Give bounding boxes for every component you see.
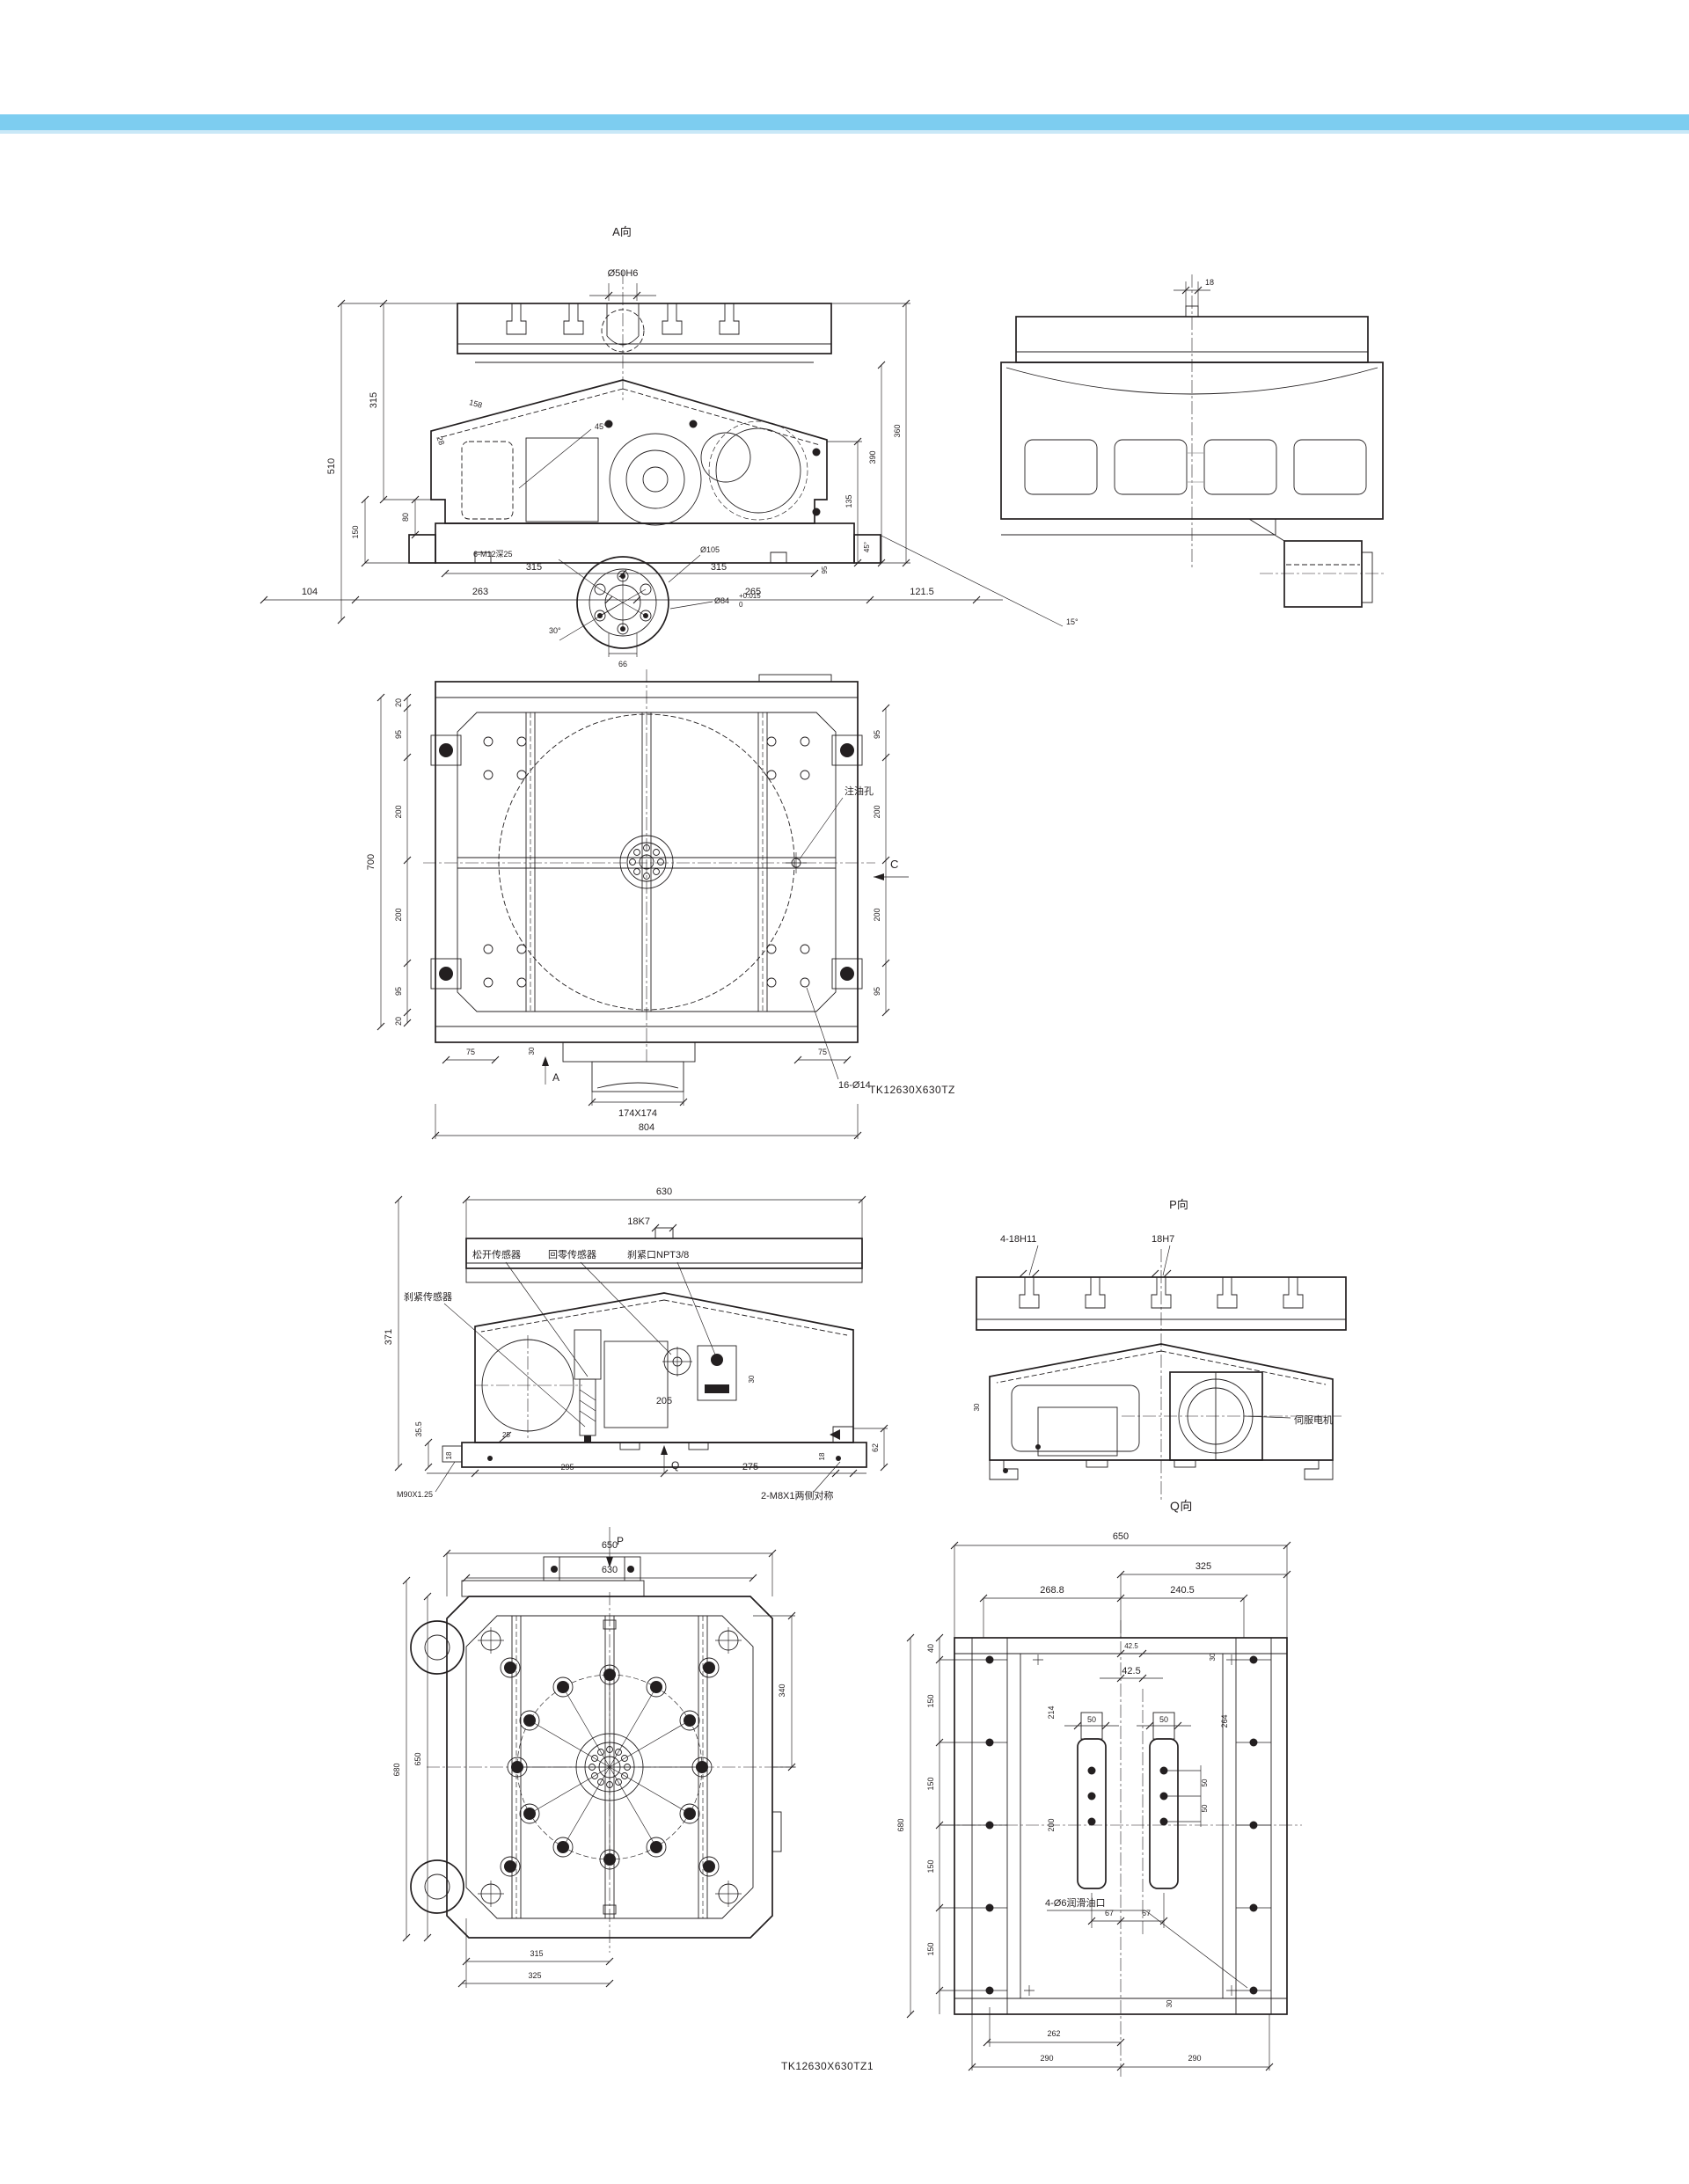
- plan-view-geometry: [423, 669, 875, 1092]
- dim-30-top: 30: [1209, 1653, 1217, 1661]
- label-q-arrow: Q: [671, 1459, 679, 1472]
- dim-680-left: 680: [392, 1763, 401, 1776]
- dim-50-right-b: 50: [1201, 1804, 1209, 1812]
- view-a-title: A向: [612, 225, 632, 238]
- dim-62: 62: [871, 1443, 880, 1452]
- dim-30: 30: [748, 1375, 756, 1383]
- dim-650-top: 650: [602, 1540, 618, 1551]
- dim-263: 263: [472, 587, 488, 597]
- dim-75-right: 75: [818, 1048, 827, 1056]
- dim-150: 150: [351, 525, 360, 538]
- dim-360: 360: [893, 424, 902, 437]
- label-m90: M90X1.25: [397, 1490, 433, 1499]
- dim-50-right-a: 50: [1201, 1779, 1209, 1786]
- dim-315-mid-right: 315: [711, 562, 727, 573]
- dim-150-d: 150: [926, 1942, 935, 1955]
- label-release-sensor: 松开传感器: [472, 1248, 521, 1260]
- dim-275: 275: [742, 1462, 758, 1472]
- label-bolts: 6-M12深25: [473, 550, 513, 559]
- dim-d84: Ø84: [714, 596, 729, 605]
- view-p-geometry: [976, 1249, 1346, 1502]
- dim-680: 680: [896, 1818, 905, 1831]
- accent-bar-light: [0, 130, 1689, 134]
- dim-104: 104: [302, 587, 318, 597]
- dim-150-a: 150: [926, 1694, 935, 1707]
- dim-18: 18: [1205, 278, 1214, 287]
- right-bolt-column: [1236, 1656, 1271, 1995]
- dim-45-center: 45°: [595, 422, 607, 431]
- key-slots: [1078, 1713, 1178, 1888]
- dim-315-mid-left: 315: [526, 562, 542, 573]
- label-brake-sensor: 刹紧传感器: [404, 1291, 452, 1303]
- dim-240-5: 240.5: [1170, 1585, 1195, 1596]
- dim-650: 650: [1113, 1531, 1129, 1542]
- dim-174x174: 174X174: [618, 1108, 657, 1119]
- side-view-geometry: [1001, 274, 1386, 607]
- label-holes: 16-Ø14: [838, 1080, 871, 1091]
- dim-95: 95: [821, 566, 829, 573]
- dim-35-5: 35.5: [414, 1421, 423, 1437]
- view-p-title: P向: [1169, 1198, 1188, 1211]
- dim-295: 295: [560, 1463, 574, 1472]
- dim-50-slot-right: 50: [1159, 1715, 1168, 1724]
- view-q: 650 325 268.8 240.5 42.5 42.5 30 214 200…: [888, 1515, 1381, 2102]
- dim-630: 630: [656, 1187, 672, 1197]
- dim-290-left: 290: [1040, 2054, 1053, 2063]
- dim-290-right: 290: [1188, 2054, 1201, 2063]
- dim-804: 804: [639, 1122, 654, 1133]
- view-a-dimensions: [260, 283, 1063, 657]
- dim-214: 214: [1047, 1706, 1056, 1719]
- dim-121-5: 121.5: [910, 587, 934, 597]
- dim-r95-top: 95: [873, 730, 881, 739]
- label-home-sensor: 回零传感器: [548, 1249, 596, 1260]
- dim-42-5-small: 42.5: [1124, 1642, 1138, 1650]
- dim-371: 371: [384, 1329, 394, 1345]
- dim-75-left: 75: [466, 1048, 475, 1056]
- dim-28: 28: [435, 435, 446, 447]
- dim-340-right: 340: [778, 1684, 786, 1697]
- dim-r200-lower: 200: [873, 908, 881, 921]
- label-18h7: 18H7: [1152, 1234, 1174, 1245]
- left-bolt-column: [972, 1656, 1007, 1995]
- front-view-sensors: 630 18K7 松开传感器 回零传感器 刹紧口NPT3/8 刹紧传感器 371…: [374, 1179, 924, 1530]
- label-oil-hole: 注油孔: [844, 785, 874, 797]
- dim-650-left: 650: [413, 1752, 422, 1765]
- dim-30-bottom: 30: [1166, 1999, 1174, 2007]
- dim-r200-upper: 200: [873, 805, 881, 818]
- label-a: A: [552, 1071, 559, 1084]
- dim-25: 25: [502, 1431, 510, 1439]
- dim-325-bottom: 325: [528, 1971, 541, 1980]
- dim-265: 265: [745, 587, 761, 597]
- dim-325: 325: [1195, 1561, 1211, 1572]
- label-servo-motor: 伺服电机: [1294, 1413, 1333, 1426]
- view-p: P向 4-18H11 18H7 伺服电机 30: [954, 1196, 1381, 1513]
- dim-262: 262: [1047, 2029, 1060, 2038]
- dim-700: 700: [366, 854, 377, 870]
- dim-390: 390: [868, 450, 877, 464]
- dim-95-bottom: 95: [394, 987, 403, 996]
- dim-18k7: 18K7: [627, 1216, 650, 1227]
- label-c: C: [890, 858, 898, 871]
- dim-315-bottom: 315: [530, 1949, 543, 1958]
- dim-30: 30: [528, 1047, 536, 1055]
- dim-205: 205: [656, 1396, 672, 1406]
- dim-18-right: 18: [818, 1452, 826, 1460]
- part-number-bottom: TK12630X630TZ1: [781, 2060, 874, 2072]
- dim-158: 158: [468, 398, 483, 410]
- dim-510: 510: [326, 458, 337, 474]
- dim-150-c: 150: [926, 1859, 935, 1873]
- dim-40: 40: [926, 1644, 935, 1653]
- dim-d84-tol-dn: 0: [739, 601, 743, 609]
- dim-630-top: 630: [602, 1565, 618, 1575]
- dim-150-b: 150: [926, 1777, 935, 1790]
- view-q-title: Q向: [1170, 1497, 1193, 1515]
- view-q-dimensions: [907, 1542, 1291, 2071]
- dim-18-left: 18: [445, 1451, 453, 1459]
- label-oil-ports: 4-Ø6润滑油口: [1045, 1896, 1105, 1909]
- dim-264: 264: [1220, 1714, 1229, 1727]
- dim-r95-bottom: 95: [873, 987, 881, 996]
- dim-200-lower: 200: [394, 908, 403, 921]
- label-m8: 2-M8X1两侧对称: [761, 1489, 834, 1501]
- view-q-geometry: [941, 1620, 1302, 2078]
- dim-135: 135: [844, 494, 853, 508]
- part-number-plan: TK12630X630TZ: [869, 1084, 955, 1096]
- dim-50-slot-left: 50: [1087, 1715, 1096, 1724]
- label-4-18h11: 4-18H11: [1000, 1234, 1036, 1245]
- accent-bar: [0, 114, 1689, 130]
- dim-d105: Ø105: [700, 545, 720, 554]
- bolt-pattern: [501, 1658, 719, 1876]
- table-bottom-view: P 650 630 680 650 340 315 325: [378, 1522, 888, 2098]
- dim-95-top: 95: [394, 730, 403, 739]
- dim-20-bottom: 20: [394, 1017, 403, 1026]
- view-a: A向 Ø50H6 510 315 80 150 158 28 45° 135 3…: [211, 220, 1108, 633]
- label-p-arrow: P: [617, 1535, 624, 1547]
- dim-20-top: 20: [394, 698, 403, 707]
- dim-spigot: Ø50H6: [608, 268, 639, 279]
- dim-42-5: 42.5: [1122, 1666, 1140, 1676]
- bottom-view-geometry: [411, 1527, 796, 1953]
- dim-45-right: 45°: [863, 542, 871, 552]
- dim-80: 80: [401, 513, 410, 522]
- front-view-dimensions: [395, 1196, 888, 1492]
- dim-268-8: 268.8: [1040, 1585, 1064, 1596]
- dim-315-left: 315: [369, 392, 379, 408]
- dim-200-upper: 200: [394, 805, 403, 818]
- dim-30deg: 30°: [549, 626, 561, 635]
- dim-67-left: 67: [1105, 1909, 1114, 1917]
- dim-30: 30: [973, 1403, 981, 1411]
- dim-67-right: 67: [1142, 1909, 1151, 1917]
- dim-200: 200: [1047, 1818, 1056, 1831]
- plan-view: 注油孔 C 16-Ø14 A 30 174X174 804 75 75 700 …: [365, 646, 915, 1161]
- side-view: 18: [994, 264, 1390, 625]
- label-brake-port: 刹紧口NPT3/8: [627, 1249, 689, 1260]
- view-p-dimensions: [1020, 1245, 1291, 1418]
